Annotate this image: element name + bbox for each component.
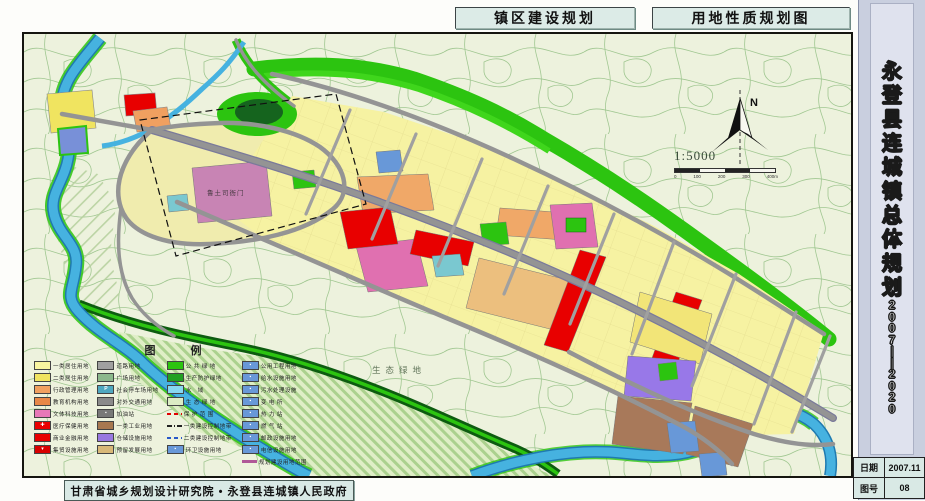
legend-swatch bbox=[167, 437, 182, 439]
legend-swatch bbox=[34, 433, 51, 442]
legend-label: 道路用地 bbox=[116, 362, 140, 370]
legend-swatch: ▪ bbox=[97, 409, 114, 418]
title-landuse-map: 用地性质规划图 bbox=[652, 7, 850, 29]
legend-swatch bbox=[167, 361, 184, 370]
west-utility-block bbox=[58, 126, 88, 155]
north-label: N bbox=[750, 97, 758, 109]
legend-item: 文体科技用地 bbox=[34, 409, 92, 418]
legend-swatch bbox=[97, 445, 114, 454]
legend-item: 道路用地 bbox=[97, 361, 161, 370]
legend-label: 文体科技用地 bbox=[53, 410, 89, 418]
legend-label: 对外交通用地 bbox=[116, 398, 152, 406]
scale-ticks: 0100200300400m bbox=[674, 174, 778, 179]
sidebar-title-char: 连 bbox=[882, 132, 902, 156]
legend-title: 图 例 bbox=[34, 342, 312, 358]
sidebar-title-char: 镇 bbox=[882, 180, 902, 204]
legend-column-3: 公 共 绿 地生产防护绿地水 域生 态 绿 地保 护 范 围一类建设控制地带二类… bbox=[167, 361, 237, 466]
sidebar-year-char: — bbox=[886, 357, 898, 369]
info-row: 日期2007.11 bbox=[854, 458, 924, 478]
legend-label: 集贸设施用地 bbox=[53, 446, 89, 454]
legend-label: 二类居住用地 bbox=[53, 374, 89, 382]
legend-swatch bbox=[167, 385, 184, 394]
info-label: 日期 bbox=[854, 458, 885, 477]
scale-box: 1:5000 0100200300400m bbox=[674, 148, 784, 179]
legend-label: 电信设施用地 bbox=[261, 446, 297, 454]
legend-label: 变 电 所 bbox=[261, 398, 283, 406]
legend-swatch bbox=[34, 373, 51, 382]
info-value: 08 bbox=[885, 478, 924, 498]
legend-item: 公 共 绿 地 bbox=[167, 361, 237, 370]
sidebar-title-char: 划 bbox=[882, 276, 902, 300]
legend-swatch: ▪ bbox=[167, 445, 184, 454]
legend-item: 预留发展用地 bbox=[97, 445, 161, 454]
legend-label: 热 力 站 bbox=[261, 410, 283, 418]
footer-credit: 甘肃省城乡规划设计研究院 • 永登县连城镇人民政府 bbox=[64, 480, 354, 501]
legend-column-4: ▪公用工程用地▪给水设施用地▪污水处理设施▪变 电 所▪热 力 站▪燃 气 站▪… bbox=[242, 361, 312, 466]
legend-swatch: ▪ bbox=[242, 397, 259, 406]
scale-tick: 100 bbox=[693, 174, 701, 179]
legend-label: 预留发展用地 bbox=[116, 446, 152, 454]
legend-label: 一类建设控制地带 bbox=[184, 422, 232, 430]
legend-label: 公用工程用地 bbox=[261, 362, 297, 370]
legend-label: 一类居住用地 bbox=[53, 362, 89, 370]
scale-tick: 400m bbox=[767, 174, 778, 179]
legend-label: 生 态 绿 地 bbox=[186, 398, 216, 406]
legend-item: 教育机构用地 bbox=[34, 397, 92, 406]
info-table: 日期2007.11图号08 bbox=[853, 457, 925, 499]
legend-item: 保 护 范 围 bbox=[167, 409, 237, 418]
legend-swatch bbox=[97, 433, 114, 442]
legend-swatch: ▪ bbox=[242, 373, 259, 382]
legend-label: 规划建设用地范围 bbox=[259, 458, 307, 466]
legend-label: 社会停车场用地 bbox=[116, 386, 158, 394]
legend-item: ▪邮政设施用地 bbox=[242, 433, 312, 442]
legend-swatch bbox=[97, 361, 114, 370]
sidebar-title-panel: 永登县连城镇总体规划2007——2020 bbox=[870, 3, 914, 455]
legend-item: 一类居住用地 bbox=[34, 361, 92, 370]
sidebar-year-char: 0 bbox=[889, 404, 896, 416]
info-value: 2007.11 bbox=[885, 458, 924, 477]
legend-column-1: 一类居住用地二类居住用地行政管理用地教育机构用地文体科技用地✚医疗保健用地商业金… bbox=[34, 361, 92, 466]
legend-swatch: ▪ bbox=[242, 445, 259, 454]
legend-swatch: ▪ bbox=[242, 421, 259, 430]
legend-item: P社会停车场用地 bbox=[97, 385, 161, 394]
legend-item: 二类居住用地 bbox=[34, 373, 92, 382]
sidebar-title-char: 体 bbox=[882, 228, 902, 252]
scale-bar bbox=[674, 168, 776, 173]
legend-item: ▾集贸设施用地 bbox=[34, 445, 92, 454]
legend-label: 仓储设施用地 bbox=[116, 434, 152, 442]
legend-label: 加油站 bbox=[116, 410, 134, 418]
utility-block-3 bbox=[376, 150, 403, 173]
legend-swatch bbox=[242, 460, 257, 463]
legend-label: 行政管理用地 bbox=[53, 386, 89, 394]
legend-label: 一类工业用地 bbox=[116, 422, 152, 430]
legend-item: 商业金融用地 bbox=[34, 433, 92, 442]
legend-label: 二类建设控制地带 bbox=[184, 434, 232, 442]
legend-swatch: ▪ bbox=[242, 361, 259, 370]
sidebar-title-char: 县 bbox=[882, 108, 902, 132]
legend-item: 对外交通用地 bbox=[97, 397, 161, 406]
legend-item: ✚医疗保健用地 bbox=[34, 421, 92, 430]
legend-item: 一类工业用地 bbox=[97, 421, 161, 430]
legend-swatch bbox=[167, 373, 184, 382]
scale-tick: 200 bbox=[718, 174, 726, 179]
legend-label: 邮政设施用地 bbox=[261, 434, 297, 442]
legend-swatch: ▪ bbox=[242, 433, 259, 442]
legend-item: 生 态 绿 地 bbox=[167, 397, 237, 406]
legend-item: ▪变 电 所 bbox=[242, 397, 312, 406]
sidebar-title-char: 登 bbox=[882, 84, 902, 108]
legend-swatch bbox=[167, 425, 182, 427]
legend-swatch bbox=[97, 397, 114, 406]
legend-swatch bbox=[167, 397, 184, 406]
legend-swatch: ✚ bbox=[34, 421, 51, 430]
legend-label: 给水设施用地 bbox=[261, 374, 297, 382]
legend-item: ▪热 力 站 bbox=[242, 409, 312, 418]
legend-swatch bbox=[34, 361, 51, 370]
legend-label: 生产防护绿地 bbox=[186, 374, 222, 382]
legend-item: 行政管理用地 bbox=[34, 385, 92, 394]
sidebar-title-char: 规 bbox=[882, 252, 902, 276]
legend-item: 仓储设施用地 bbox=[97, 433, 161, 442]
legend-label: 医疗保健用地 bbox=[53, 422, 89, 430]
legend: 图 例 一类居住用地二类居住用地行政管理用地教育机构用地文体科技用地✚医疗保健用… bbox=[34, 342, 312, 474]
legend-swatch bbox=[97, 421, 114, 430]
legend-item: 规划建设用地范围 bbox=[242, 457, 312, 466]
sidebar: 永登县连城镇总体规划2007——2020 bbox=[858, 0, 925, 500]
eco-green-label: 生态绿地 bbox=[372, 365, 426, 375]
legend-item: ▪电信设施用地 bbox=[242, 445, 312, 454]
legend-item: 生产防护绿地 bbox=[167, 373, 237, 382]
legend-column-2: 道路用地广场用地P社会停车场用地对外交通用地▪加油站一类工业用地仓储设施用地预留… bbox=[97, 361, 161, 466]
legend-swatch: ▪ bbox=[242, 385, 259, 394]
legend-swatch bbox=[97, 373, 114, 382]
sidebar-title-char: 永 bbox=[882, 60, 902, 84]
legend-item: 二类建设控制地带 bbox=[167, 433, 237, 442]
info-row: 图号08 bbox=[854, 478, 924, 498]
legend-columns: 一类居住用地二类居住用地行政管理用地教育机构用地文体科技用地✚医疗保健用地商业金… bbox=[34, 361, 312, 466]
info-label: 图号 bbox=[854, 478, 885, 498]
legend-item: ▪公用工程用地 bbox=[242, 361, 312, 370]
scale-tick: 0 bbox=[674, 174, 677, 179]
legend-item: ▪给水设施用地 bbox=[242, 373, 312, 382]
legend-label: 公 共 绿 地 bbox=[186, 362, 216, 370]
legend-item: ▪燃 气 站 bbox=[242, 421, 312, 430]
title-construction-plan: 镇区建设规划 bbox=[455, 7, 635, 29]
commercial-block-1 bbox=[340, 207, 398, 249]
legend-label: 环卫设施用地 bbox=[186, 446, 222, 454]
legend-label: 水 域 bbox=[186, 386, 204, 394]
legend-swatch bbox=[167, 413, 182, 415]
stadium bbox=[566, 218, 586, 232]
legend-label: 保 护 范 围 bbox=[184, 410, 214, 418]
scale-ratio: 1:5000 bbox=[674, 148, 784, 164]
legend-label: 教育机构用地 bbox=[53, 398, 89, 406]
legend-swatch bbox=[34, 409, 51, 418]
sidebar-year-char: — bbox=[886, 346, 898, 358]
heritage-label: 鲁土司衙门 bbox=[207, 188, 245, 197]
legend-label: 广场用地 bbox=[116, 374, 140, 382]
sidebar-title-char: 总 bbox=[882, 204, 902, 228]
sidebar-year-char: 7 bbox=[889, 335, 896, 347]
legend-swatch: ▾ bbox=[34, 445, 51, 454]
legend-item: 水 域 bbox=[167, 385, 237, 394]
legend-swatch: ▪ bbox=[242, 409, 259, 418]
legend-swatch bbox=[34, 397, 51, 406]
legend-item: ▪环卫设施用地 bbox=[167, 445, 237, 454]
green-block-3 bbox=[658, 362, 678, 381]
legend-swatch: P bbox=[97, 385, 114, 394]
sidebar-title-char: 城 bbox=[882, 156, 902, 180]
legend-label: 商业金融用地 bbox=[53, 434, 89, 442]
legend-swatch bbox=[34, 385, 51, 394]
legend-item: 一类建设控制地带 bbox=[167, 421, 237, 430]
legend-item: 广场用地 bbox=[97, 373, 161, 382]
legend-label: 燃 气 站 bbox=[261, 422, 283, 430]
scale-tick: 300 bbox=[742, 174, 750, 179]
map-frame: 鲁土司衙门 生态绿地 N 1:5000 0100200300400m 图 例 一… bbox=[22, 32, 853, 478]
legend-label: 污水处理设施 bbox=[261, 386, 297, 394]
legend-item: ▪污水处理设施 bbox=[242, 385, 312, 394]
legend-item: ▪加油站 bbox=[97, 409, 161, 418]
